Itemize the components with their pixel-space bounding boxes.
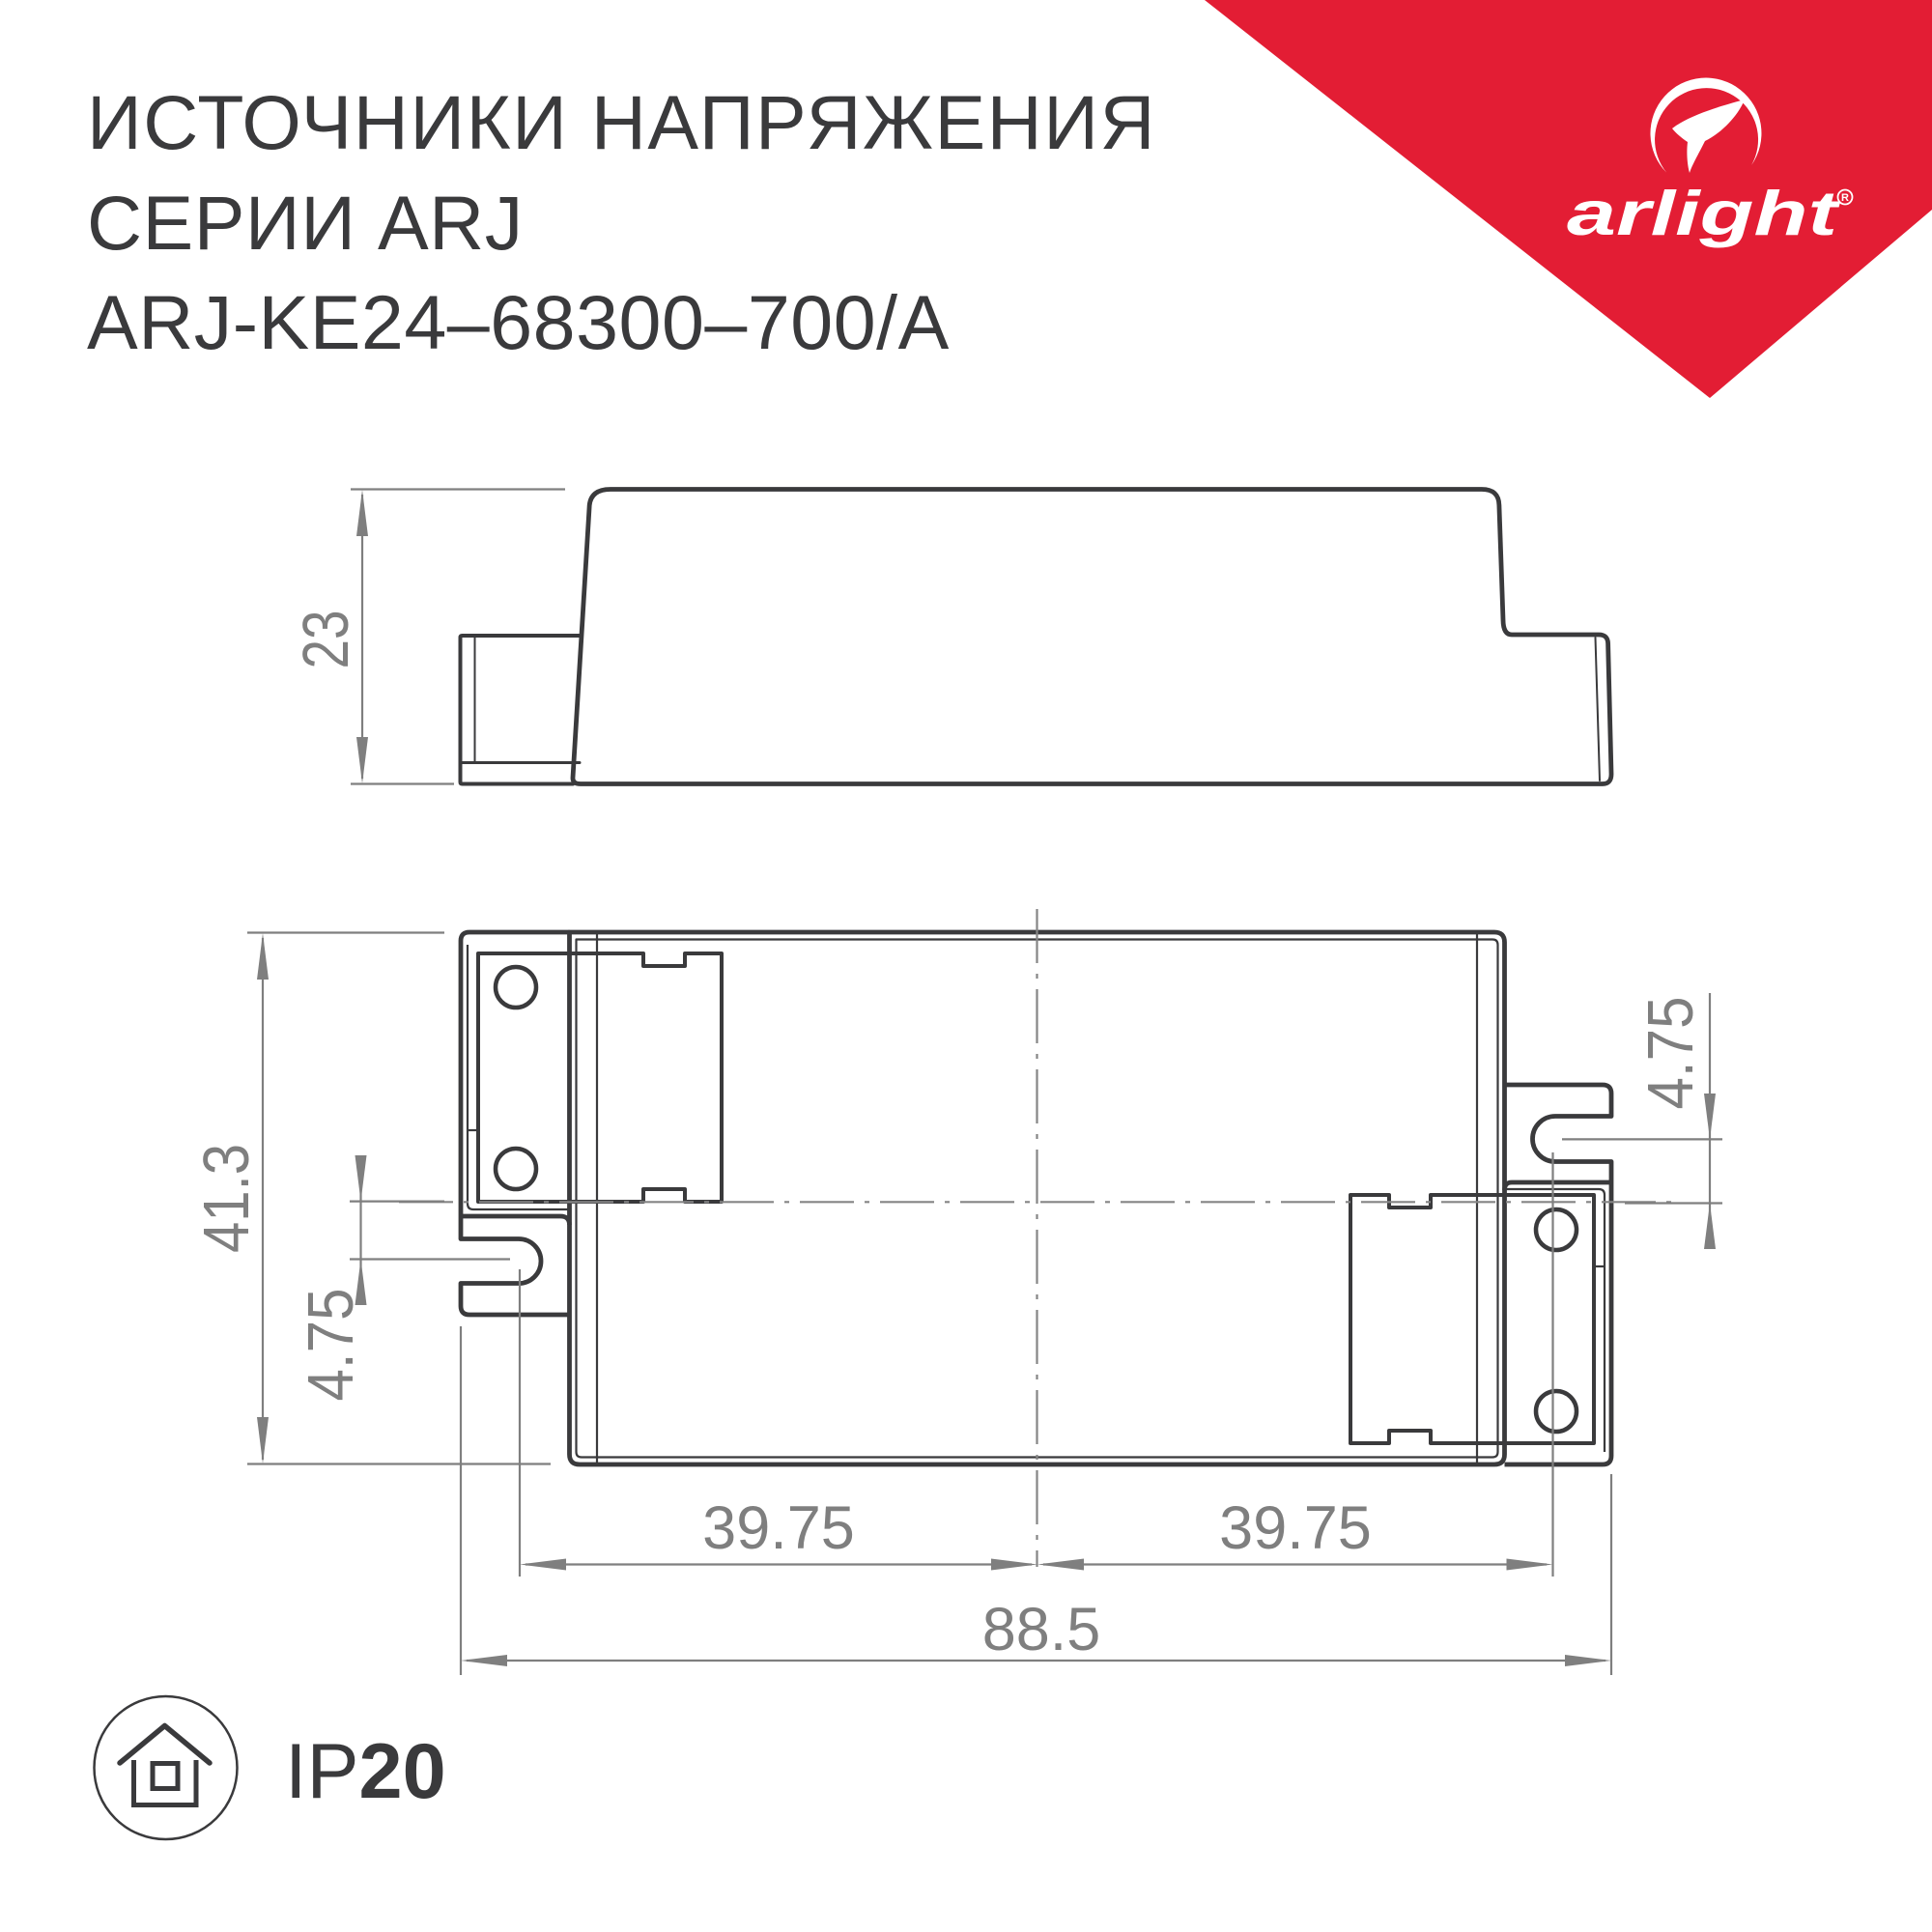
svg-text:R: R [1841, 192, 1849, 204]
svg-text:4.75: 4.75 [1634, 997, 1707, 1110]
svg-text:4.75: 4.75 [295, 1289, 367, 1402]
svg-text:ИСТОЧНИКИ НАПРЯЖЕНИЯ: ИСТОЧНИКИ НАПРЯЖЕНИЯ [87, 79, 1156, 165]
svg-text:23: 23 [290, 611, 362, 669]
svg-text:arlight: arlight [1567, 178, 1840, 248]
svg-text:39.75: 39.75 [1219, 1494, 1372, 1562]
svg-text:СЕРИИ ARJ: СЕРИИ ARJ [87, 180, 524, 266]
svg-text:IP20: IP20 [285, 1728, 446, 1815]
svg-text:41.3: 41.3 [190, 1144, 263, 1253]
svg-text:ARJ-KE24–68300–700/А: ARJ-KE24–68300–700/А [87, 279, 950, 365]
svg-text:88.5: 88.5 [982, 1596, 1101, 1663]
svg-text:39.75: 39.75 [702, 1494, 855, 1562]
